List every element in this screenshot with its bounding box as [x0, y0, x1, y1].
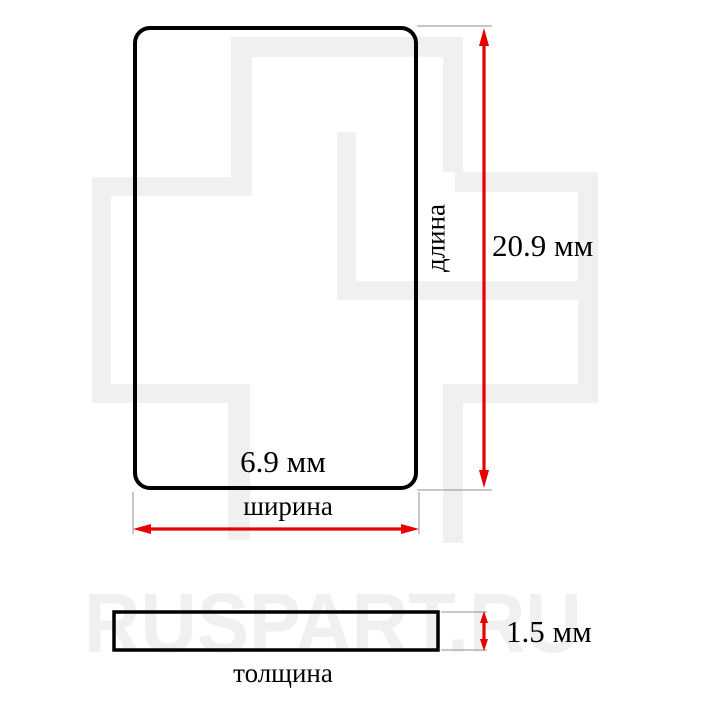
- length-caption-label: длина: [421, 204, 452, 272]
- thickness-dimension-arrow: [480, 611, 488, 651]
- part-front-outline: [135, 28, 416, 488]
- thickness-value-label: 1.5 мм: [506, 614, 592, 650]
- length-value-label: 20.9 мм: [492, 228, 593, 264]
- thickness-caption-label: толщина: [200, 658, 366, 689]
- part-side-outline: [114, 612, 438, 650]
- drawing-canvas: [0, 0, 703, 703]
- dimension-diagram: RUSPART.RU 6.9 мм: [0, 0, 703, 703]
- width-value-label: 6.9 мм: [200, 444, 366, 480]
- width-dimension-arrow: [133, 524, 419, 534]
- length-dimension-arrow: [479, 28, 489, 488]
- width-caption-label: ширина: [200, 491, 376, 522]
